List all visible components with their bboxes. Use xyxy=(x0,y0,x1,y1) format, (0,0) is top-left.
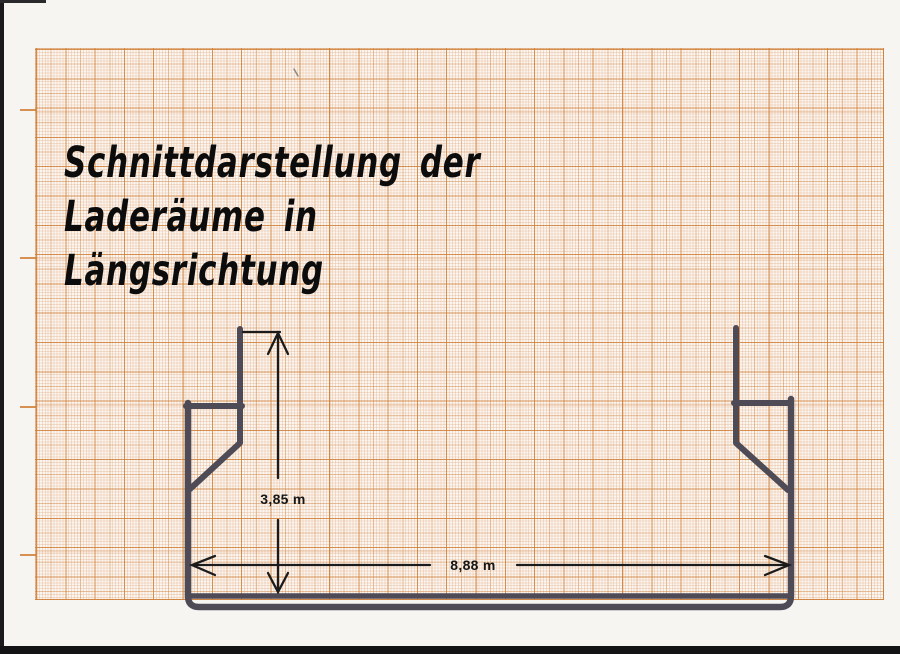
width-dimension-label: 8,88 m xyxy=(450,557,495,573)
height-dimension-label: 3,85 m xyxy=(260,491,305,507)
hull-cross-section-drawing: 3,85 m 8,88 m xyxy=(0,0,900,654)
right-hatch-coaming xyxy=(736,328,788,490)
scanned-graph-paper-page: Schnittdarstellung der Laderäume in Läng… xyxy=(0,0,900,654)
height-dimension xyxy=(243,332,288,592)
stray-pen-mark xyxy=(294,69,298,76)
